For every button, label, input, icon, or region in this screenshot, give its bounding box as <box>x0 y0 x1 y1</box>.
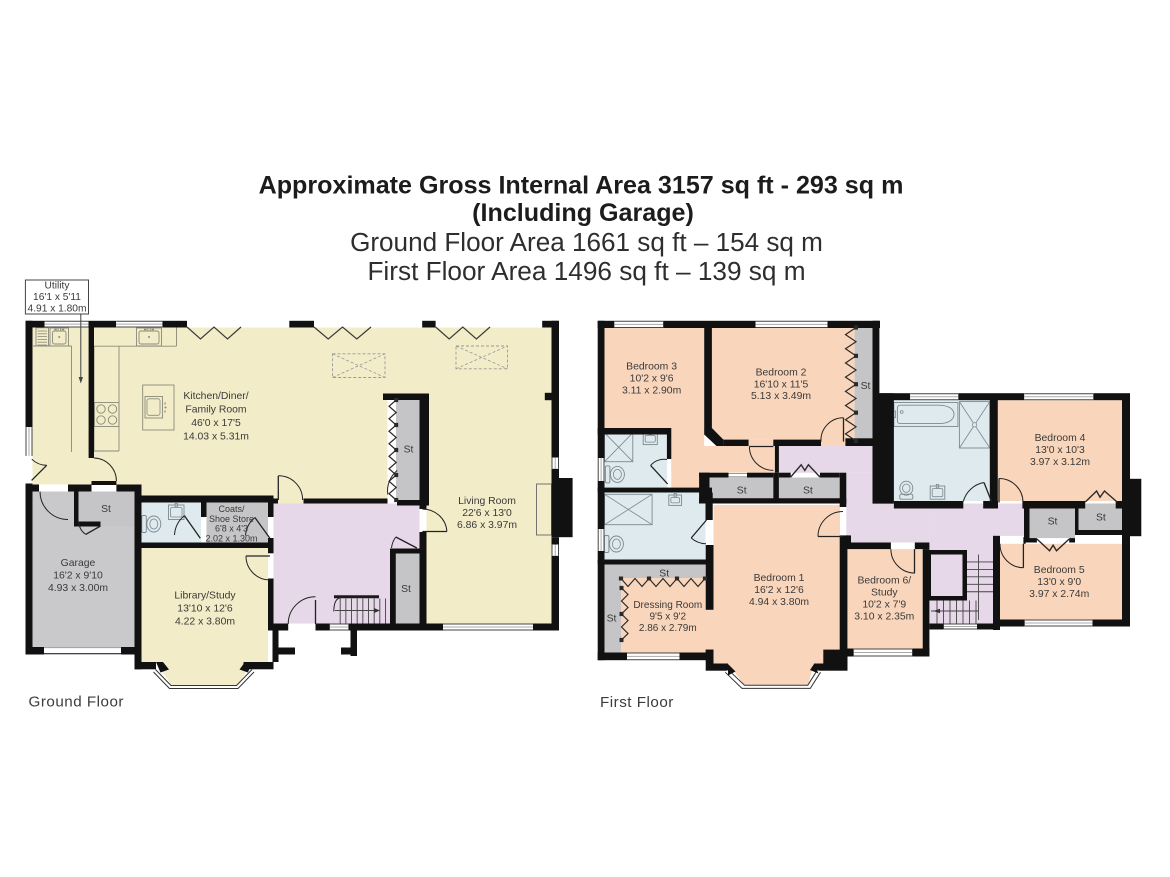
svg-text:St: St <box>101 504 111 515</box>
svg-text:3.97 x 2.74m: 3.97 x 2.74m <box>1029 589 1089 600</box>
svg-text:St: St <box>404 445 414 456</box>
svg-text:10'2 x 9'6: 10'2 x 9'6 <box>630 374 674 385</box>
svg-text:Dressing Room: Dressing Room <box>633 600 702 611</box>
svg-text:9'5 x 9'2: 9'5 x 9'2 <box>649 612 686 623</box>
svg-text:First Floor: First Floor <box>600 694 674 711</box>
svg-text:Library/Study: Library/Study <box>174 591 236 602</box>
svg-text:2.86 x 2.79m: 2.86 x 2.79m <box>639 623 697 634</box>
svg-text:14.03 x 5.31m: 14.03 x 5.31m <box>183 432 249 443</box>
svg-text:St: St <box>1048 517 1058 528</box>
svg-text:Family Room: Family Room <box>185 405 246 416</box>
svg-text:5.13 x 3.49m: 5.13 x 3.49m <box>751 391 811 402</box>
svg-text:6'8 x 4'3: 6'8 x 4'3 <box>215 524 248 534</box>
svg-text:St: St <box>803 486 813 497</box>
svg-text:13'10 x 12'6: 13'10 x 12'6 <box>177 604 233 615</box>
svg-text:4.94 x 3.80m: 4.94 x 3.80m <box>749 597 809 608</box>
svg-text:22'6 x 13'0: 22'6 x 13'0 <box>462 508 512 519</box>
svg-text:3.11 x 2.90m: 3.11 x 2.90m <box>622 386 681 397</box>
svg-text:13'0 x 10'3: 13'0 x 10'3 <box>1035 445 1085 456</box>
svg-text:(Including Garage): (Including Garage) <box>472 199 694 227</box>
svg-text:Bedroom 2: Bedroom 2 <box>756 367 807 378</box>
svg-text:Bedroom 1: Bedroom 1 <box>754 573 805 584</box>
svg-text:Shoe Store: Shoe Store <box>209 514 254 524</box>
svg-text:Approximate Gross Internal Are: Approximate Gross Internal Area 3157 sq … <box>259 172 904 200</box>
svg-text:16'2 x 9'10: 16'2 x 9'10 <box>53 571 103 582</box>
svg-text:Garage: Garage <box>61 558 96 569</box>
svg-text:3.97 x 3.12m: 3.97 x 3.12m <box>1030 457 1090 468</box>
svg-text:Bedroom 5: Bedroom 5 <box>1034 565 1085 576</box>
svg-text:Coats/: Coats/ <box>218 504 245 514</box>
svg-text:Bedroom 6/: Bedroom 6/ <box>857 576 911 587</box>
svg-text:2.02 x 1.30m: 2.02 x 1.30m <box>205 533 257 543</box>
svg-text:4.22 x 3.80m: 4.22 x 3.80m <box>175 617 235 628</box>
svg-text:St: St <box>737 486 747 497</box>
svg-text:St: St <box>401 584 411 595</box>
svg-text:6.86 x 3.97m: 6.86 x 3.97m <box>457 520 517 531</box>
svg-text:Bedroom 3: Bedroom 3 <box>626 362 677 373</box>
svg-text:Utility: Utility <box>45 280 71 291</box>
svg-text:St: St <box>659 569 669 580</box>
svg-text:Bedroom 4: Bedroom 4 <box>1035 433 1086 444</box>
svg-text:Study: Study <box>871 588 898 599</box>
svg-text:16'10 x 11'5: 16'10 x 11'5 <box>754 379 809 390</box>
svg-text:3.10 x 2.35m: 3.10 x 2.35m <box>854 611 914 622</box>
svg-text:St: St <box>607 614 617 625</box>
svg-text:Living Room: Living Room <box>458 496 516 507</box>
svg-text:4.91 x 1.80m: 4.91 x 1.80m <box>28 303 87 314</box>
svg-text:St: St <box>1096 513 1106 524</box>
svg-text:46'0 x 17'5: 46'0 x 17'5 <box>191 418 241 429</box>
svg-text:10'2 x 7'9: 10'2 x 7'9 <box>862 600 906 611</box>
svg-text:4.93 x 3.00m: 4.93 x 3.00m <box>48 583 108 594</box>
svg-text:13'0 x 9'0: 13'0 x 9'0 <box>1037 577 1081 588</box>
svg-text:Kitchen/Diner/: Kitchen/Diner/ <box>183 391 248 402</box>
svg-text:16'2 x 12'6: 16'2 x 12'6 <box>754 585 804 596</box>
svg-text:First Floor Area 1496 sq ft –: First Floor Area 1496 sq ft – 139 sq m <box>367 256 805 286</box>
svg-text:Ground Floor: Ground Floor <box>29 694 124 711</box>
svg-text:Ground Floor Area 1661 sq ft –: Ground Floor Area 1661 sq ft – 154 sq m <box>350 227 823 257</box>
svg-text:St: St <box>861 381 871 392</box>
svg-text:16'1 x 5'11: 16'1 x 5'11 <box>33 292 81 303</box>
